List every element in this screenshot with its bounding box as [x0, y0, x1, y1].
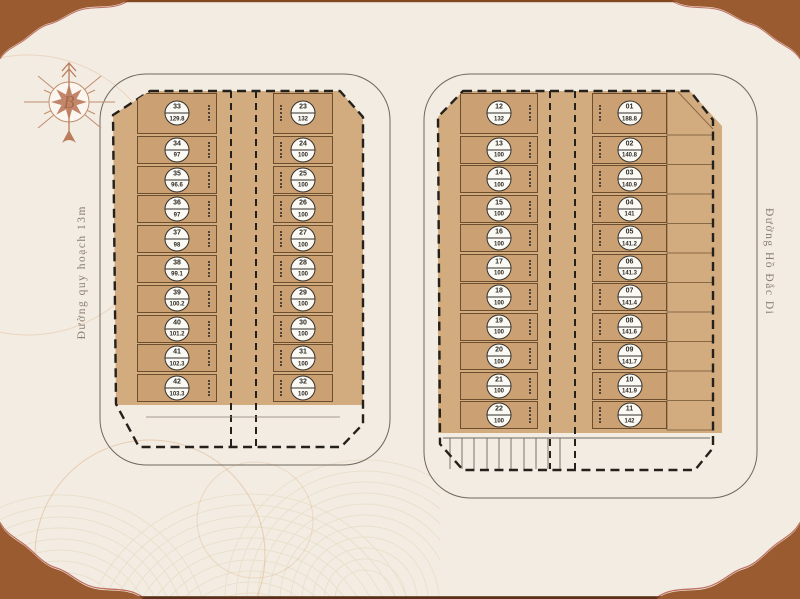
- plot-cell[interactable]: 33 129.8: [137, 93, 217, 134]
- plot-cell[interactable]: 24 100: [273, 136, 333, 164]
- plot-cell[interactable]: 19 100: [460, 313, 538, 341]
- entry-dots-icon: [529, 142, 531, 158]
- plot-area: 132: [292, 114, 315, 125]
- plot-badge: 22 100: [487, 403, 512, 428]
- entry-dots-icon: [529, 230, 531, 246]
- entry-dots-icon: [208, 261, 210, 277]
- plot-badge: 15 100: [487, 196, 512, 221]
- entry-dots-icon: [280, 261, 282, 277]
- entry-dots-icon: [208, 172, 210, 188]
- plot-badge: 26 100: [291, 197, 316, 222]
- plot-cell[interactable]: 34 97: [137, 136, 217, 164]
- plot-badge: 39 100.2: [165, 286, 190, 311]
- plot-number: 01: [618, 102, 641, 114]
- plot-number: 25: [292, 168, 315, 180]
- plot-cell[interactable]: 40 101.2: [137, 315, 217, 343]
- plot-badge: 08 141.6: [617, 314, 642, 339]
- plot-cell[interactable]: 17 100: [460, 254, 538, 282]
- plot-number: 42: [166, 377, 189, 389]
- plot-number: 12: [488, 102, 511, 114]
- entry-dots-icon: [529, 289, 531, 305]
- plot-area: 98: [166, 240, 189, 251]
- plot-cell[interactable]: 02 140.8: [592, 136, 667, 164]
- plot-number: 02: [618, 138, 641, 150]
- plot-cell[interactable]: 41 102.3: [137, 344, 217, 372]
- plot-badge: 07 141.4: [617, 285, 642, 310]
- plot-number: 05: [618, 227, 641, 239]
- plot-badge: 02 140.8: [617, 137, 642, 162]
- entry-dots-icon: [529, 171, 531, 187]
- plot-number: 29: [292, 287, 315, 299]
- plot-badge: 31 100: [291, 346, 316, 371]
- plot-area: 141.4: [618, 298, 641, 309]
- plot-area: 141.9: [618, 386, 641, 397]
- entry-dots-icon: [280, 142, 282, 158]
- entry-dots-icon: [529, 378, 531, 394]
- plot-cell[interactable]: 07 141.4: [592, 283, 667, 311]
- plot-cell[interactable]: 10 141.9: [592, 372, 667, 400]
- plot-cell[interactable]: 28 100: [273, 255, 333, 283]
- plot-area: 141.7: [618, 357, 641, 368]
- plot-number: 09: [618, 345, 641, 357]
- entry-dots-icon: [599, 230, 601, 246]
- road-label-right: Đường Hồ Đắc Di: [763, 208, 775, 315]
- plot-cell[interactable]: 30 100: [273, 315, 333, 343]
- plot-area: 141.2: [618, 239, 641, 250]
- plot-cell[interactable]: 04 141: [592, 195, 667, 223]
- plot-number: 28: [292, 257, 315, 269]
- plot-cell[interactable]: 31 100: [273, 344, 333, 372]
- plot-area: 97: [166, 210, 189, 221]
- plot-badge: 20 100: [487, 344, 512, 369]
- plot-number: 13: [488, 138, 511, 150]
- plot-cell[interactable]: 42 103.3: [137, 374, 217, 402]
- plot-area: 103.3: [166, 389, 189, 400]
- plot-cell[interactable]: 15 100: [460, 195, 538, 223]
- plot-badge: 19 100: [487, 314, 512, 339]
- entry-dots-icon: [208, 350, 210, 366]
- entry-dots-icon: [599, 378, 601, 394]
- plot-area: 100: [488, 357, 511, 368]
- entry-dots-icon: [280, 350, 282, 366]
- plot-badge: 05 141.2: [617, 226, 642, 251]
- plot-badge: 34 97: [165, 137, 190, 162]
- plot-area: 100: [292, 150, 315, 161]
- entry-dots-icon: [280, 380, 282, 396]
- plot-area: 100: [488, 268, 511, 279]
- plot-number: 16: [488, 227, 511, 239]
- plot-number: 20: [488, 345, 511, 357]
- plot-badge: 18 100: [487, 285, 512, 310]
- plot-area: 100: [292, 389, 315, 400]
- plot-badge: 03 140.9: [617, 167, 642, 192]
- plot-cell[interactable]: 39 100.2: [137, 285, 217, 313]
- plot-area: 100: [488, 209, 511, 220]
- plot-cell[interactable]: 05 141.2: [592, 224, 667, 252]
- plot-area: 100: [292, 210, 315, 221]
- plot-number: 03: [618, 168, 641, 180]
- plot-number: 18: [488, 286, 511, 298]
- plot-cell[interactable]: 06 141.3: [592, 254, 667, 282]
- plot-badge: 14 100: [487, 167, 512, 192]
- plot-cell[interactable]: 32 100: [273, 374, 333, 402]
- plot-number: 26: [292, 198, 315, 210]
- plot-badge: 12 132: [487, 101, 512, 126]
- plot-number: 30: [292, 317, 315, 329]
- plot-badge: 33 129.8: [165, 101, 190, 126]
- entry-dots-icon: [599, 171, 601, 187]
- entry-dots-icon: [208, 321, 210, 337]
- plot-cell[interactable]: 13 100: [460, 136, 538, 164]
- plot-cell[interactable]: 38 99.1: [137, 255, 217, 283]
- plot-cell[interactable]: 26 100: [273, 195, 333, 223]
- plot-cell[interactable]: 27 100: [273, 225, 333, 253]
- entry-dots-icon: [599, 348, 601, 364]
- plot-number: 10: [618, 374, 641, 386]
- plot-number: 17: [488, 256, 511, 268]
- entry-dots-icon: [208, 380, 210, 396]
- plot-badge: 24 100: [291, 137, 316, 162]
- plot-area: 100.2: [166, 299, 189, 310]
- entry-dots-icon: [280, 291, 282, 307]
- plot-cell[interactable]: 25 100: [273, 166, 333, 194]
- plot-area: 102.3: [166, 359, 189, 370]
- plot-cell[interactable]: 22 100: [460, 401, 538, 429]
- plot-badge: 21 100: [487, 373, 512, 398]
- plot-area: 140.9: [618, 180, 641, 191]
- plot-number: 11: [618, 404, 641, 416]
- plot-cell[interactable]: 18 100: [460, 283, 538, 311]
- entry-dots-icon: [599, 105, 601, 121]
- plot-area: 188.8: [618, 114, 641, 125]
- plot-badge: 27 100: [291, 227, 316, 252]
- plot-area: 141.3: [618, 268, 641, 279]
- plot-number: 22: [488, 404, 511, 416]
- plot-cell[interactable]: 23 132: [273, 93, 333, 134]
- plot-badge: 06 141.3: [617, 255, 642, 280]
- plot-badge: 13 100: [487, 137, 512, 162]
- entry-dots-icon: [529, 407, 531, 423]
- entry-dots-icon: [529, 348, 531, 364]
- plot-number: 38: [166, 257, 189, 269]
- plot-cell[interactable]: 16 100: [460, 224, 538, 252]
- entry-dots-icon: [599, 407, 601, 423]
- plot-number: 14: [488, 168, 511, 180]
- plot-area: 100: [488, 327, 511, 338]
- plot-badge: 41 102.3: [165, 346, 190, 371]
- plot-badge: 38 99.1: [165, 256, 190, 281]
- entry-dots-icon: [208, 231, 210, 247]
- entry-dots-icon: [599, 201, 601, 217]
- plot-area: 100: [488, 239, 511, 250]
- plot-number: 24: [292, 138, 315, 150]
- plot-number: 37: [166, 228, 189, 240]
- plot-number: 40: [166, 317, 189, 329]
- plot-area: 141: [618, 209, 641, 220]
- plot-cell[interactable]: 12 132: [460, 93, 538, 134]
- plot-badge: 28 100: [291, 256, 316, 281]
- plot-badge: 17 100: [487, 255, 512, 280]
- entry-dots-icon: [529, 105, 531, 121]
- plot-badge: 32 100: [291, 376, 316, 401]
- plot-area: 132: [488, 114, 511, 125]
- plot-badge: 25 100: [291, 167, 316, 192]
- plot-area: 140.8: [618, 150, 641, 161]
- plot-badge: 37 98: [165, 227, 190, 252]
- plot-badge: 40 101.2: [165, 316, 190, 341]
- plot-badge: 29 100: [291, 286, 316, 311]
- plot-number: 35: [166, 168, 189, 180]
- plot-badge: 01 188.8: [617, 101, 642, 126]
- plot-number: 19: [488, 315, 511, 327]
- entry-dots-icon: [208, 201, 210, 217]
- entry-dots-icon: [529, 319, 531, 335]
- plot-badge: 42 103.3: [165, 376, 190, 401]
- plot-area: 96.6: [166, 180, 189, 191]
- plot-area: 100: [488, 416, 511, 427]
- plot-area: 100: [488, 386, 511, 397]
- entry-dots-icon: [208, 105, 210, 121]
- plot-badge: 04 141: [617, 196, 642, 221]
- entry-dots-icon: [599, 289, 601, 305]
- plot-number: 07: [618, 286, 641, 298]
- plot-cell[interactable]: 09 141.7: [592, 342, 667, 370]
- entry-dots-icon: [599, 142, 601, 158]
- road-label-left: Đường quy hoạch 13m: [76, 205, 88, 339]
- plot-number: 21: [488, 374, 511, 386]
- entry-dots-icon: [599, 319, 601, 335]
- plot-badge: 09 141.7: [617, 344, 642, 369]
- plot-number: 27: [292, 228, 315, 240]
- entry-dots-icon: [208, 291, 210, 307]
- plot-cell[interactable]: 03 140.9: [592, 165, 667, 193]
- plot-number: 31: [292, 347, 315, 359]
- plot-area: 100: [292, 329, 315, 340]
- plot-cell[interactable]: 14 100: [460, 165, 538, 193]
- entry-dots-icon: [529, 201, 531, 217]
- plot-number: 41: [166, 347, 189, 359]
- plot-badge: 16 100: [487, 226, 512, 251]
- entry-dots-icon: [208, 142, 210, 158]
- plot-area: 100: [488, 150, 511, 161]
- plot-number: 08: [618, 315, 641, 327]
- entry-dots-icon: [280, 321, 282, 337]
- plot-number: 23: [292, 102, 315, 114]
- plot-badge: 35 96.6: [165, 167, 190, 192]
- plot-area: 101.2: [166, 329, 189, 340]
- plot-area: 100: [292, 269, 315, 280]
- entry-dots-icon: [529, 260, 531, 276]
- plot-cell[interactable]: 29 100: [273, 285, 333, 313]
- plot-area: 141.6: [618, 327, 641, 338]
- plot-area: 142: [618, 416, 641, 427]
- plot-area: 100: [488, 298, 511, 309]
- plot-badge: 36 97: [165, 197, 190, 222]
- plot-area: 100: [292, 240, 315, 251]
- plot-area: 100: [292, 180, 315, 191]
- plot-number: 15: [488, 197, 511, 209]
- entry-dots-icon: [280, 105, 282, 121]
- plot-cell[interactable]: 01 188.8: [592, 93, 667, 134]
- plot-badge: 23 132: [291, 101, 316, 126]
- plot-number: 06: [618, 256, 641, 268]
- plot-number: 32: [292, 377, 315, 389]
- plot-cell[interactable]: 08 141.6: [592, 313, 667, 341]
- plot-number: 04: [618, 197, 641, 209]
- entry-dots-icon: [599, 260, 601, 276]
- plot-cell[interactable]: 35 96.6: [137, 166, 217, 194]
- plot-badge: 10 141.9: [617, 373, 642, 398]
- entry-dots-icon: [280, 201, 282, 217]
- plot-number: 39: [166, 287, 189, 299]
- entry-dots-icon: [280, 172, 282, 188]
- plot-area: 100: [292, 299, 315, 310]
- plot-area: 100: [292, 359, 315, 370]
- plot-cell[interactable]: 11 142: [592, 401, 667, 429]
- compass-icon: B: [22, 50, 117, 155]
- plot-cell[interactable]: 36 97: [137, 195, 217, 223]
- plot-cell[interactable]: 21 100: [460, 372, 538, 400]
- plot-area: 99.1: [166, 269, 189, 280]
- plot-badge: 11 142: [617, 403, 642, 428]
- plot-cell[interactable]: 37 98: [137, 225, 217, 253]
- plot-area: 129.8: [166, 114, 189, 125]
- entry-dots-icon: [280, 231, 282, 247]
- site-plan: 33 129.8 34 97 35 96.6 36 97 37 98 38 99…: [0, 0, 800, 599]
- plot-cell[interactable]: 20 100: [460, 342, 538, 370]
- plot-area: 97: [166, 150, 189, 161]
- plot-area: 100: [488, 180, 511, 191]
- plot-number: 33: [166, 102, 189, 114]
- plot-badge: 30 100: [291, 316, 316, 341]
- plot-number: 36: [166, 198, 189, 210]
- plot-number: 34: [166, 138, 189, 150]
